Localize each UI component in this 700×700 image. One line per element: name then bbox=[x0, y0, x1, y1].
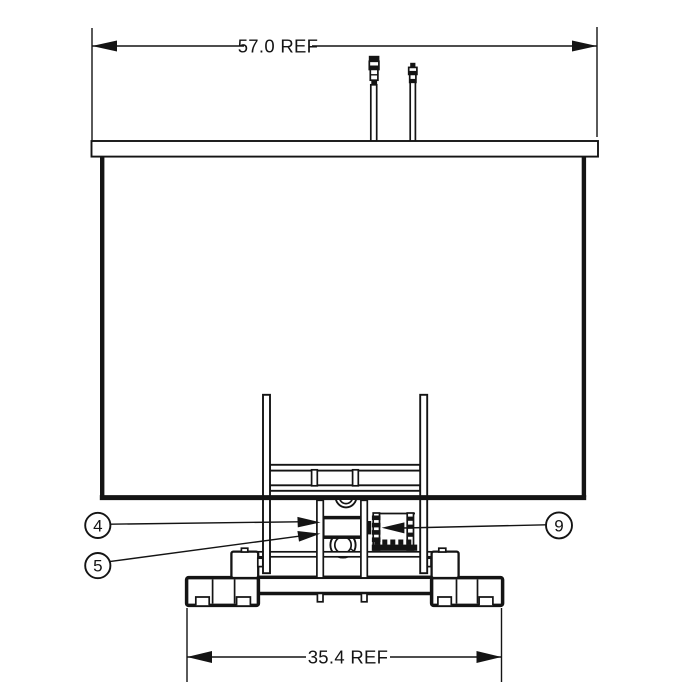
fork-mount-box bbox=[231, 552, 258, 578]
motor-housing bbox=[323, 518, 362, 538]
channel-post-foot-left bbox=[317, 593, 323, 601]
chain-link bbox=[372, 523, 381, 528]
chain-tooth bbox=[406, 540, 411, 545]
caster-block-right bbox=[432, 578, 503, 606]
fork-mount-tab bbox=[258, 558, 263, 566]
top-dimension-label: 57.0 REF bbox=[238, 36, 319, 57]
channel-post-right bbox=[361, 500, 367, 578]
base-beam bbox=[258, 577, 432, 593]
chain-tooth bbox=[398, 540, 403, 545]
chain-link bbox=[372, 516, 381, 521]
pulley-hub bbox=[335, 537, 351, 553]
rail-tab-right bbox=[353, 470, 359, 486]
upper-cross-rail bbox=[270, 465, 420, 471]
caster-fork-left bbox=[231, 548, 262, 578]
chain-bottom-run bbox=[372, 545, 417, 551]
wheel-notch bbox=[196, 597, 209, 605]
wheel-notch bbox=[438, 597, 451, 605]
connector-stem bbox=[371, 85, 377, 141]
chain-tooth bbox=[382, 540, 387, 545]
caster-fork-right bbox=[426, 548, 459, 578]
bottom-dimension-label: 35.4 REF bbox=[308, 647, 389, 668]
caster-block-left bbox=[187, 578, 259, 606]
wheel-notch bbox=[479, 597, 493, 605]
connector-stem bbox=[410, 82, 415, 141]
fork-mount-box bbox=[432, 552, 459, 578]
chain-link bbox=[407, 517, 414, 521]
chain-link bbox=[372, 530, 381, 535]
hopper-lid bbox=[92, 141, 599, 157]
mast-upright-left bbox=[263, 395, 270, 573]
chain-tooth bbox=[374, 540, 379, 545]
callout-number: 5 bbox=[93, 557, 102, 576]
callout-number: 9 bbox=[554, 516, 563, 535]
rail-tab-left bbox=[312, 470, 318, 486]
chain-tooth bbox=[390, 540, 395, 545]
connector-rod-right bbox=[409, 63, 417, 142]
callout-number: 4 bbox=[93, 516, 102, 535]
fork-mount-bolt bbox=[241, 548, 247, 552]
chain-link bbox=[407, 533, 414, 537]
mast-upright-right bbox=[420, 395, 427, 573]
channel-post-foot-right bbox=[361, 593, 367, 601]
hopper-rear-view-drawing: 57.0 REF bbox=[0, 0, 700, 700]
fork-mount-bolt bbox=[439, 548, 446, 552]
engineering-drawing-sheet: 57.0 REF bbox=[0, 0, 700, 700]
base-channel-bar bbox=[258, 552, 432, 557]
channel-post-left bbox=[317, 500, 323, 578]
lower-cross-rail bbox=[270, 485, 420, 491]
wheel-notch bbox=[237, 597, 251, 605]
